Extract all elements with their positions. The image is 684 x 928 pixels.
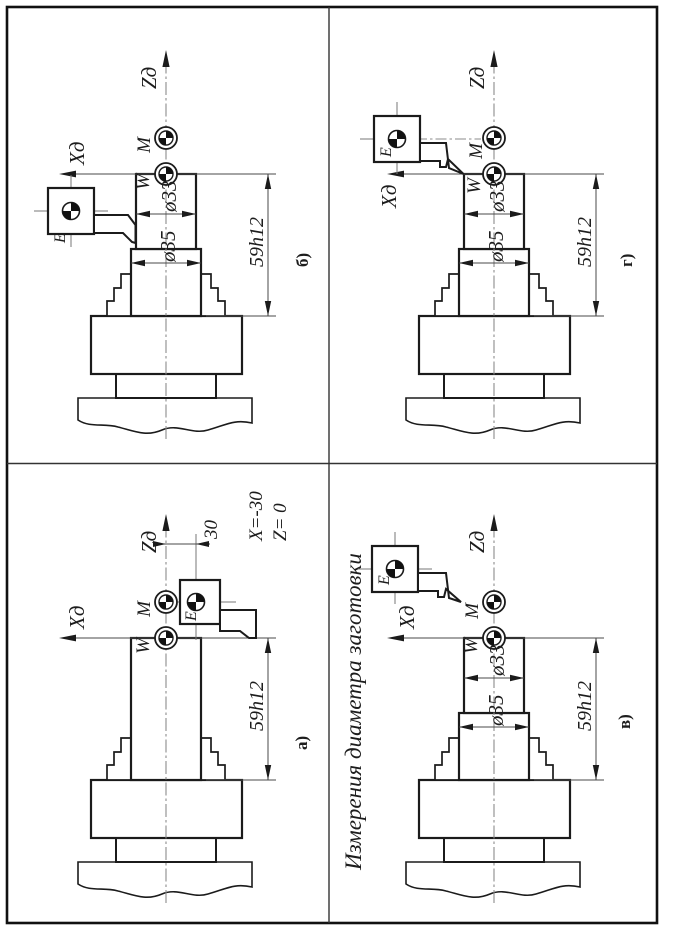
panel-label: в) [615,714,634,729]
axis-x-label: Хд [65,606,89,630]
lathe-setup-drawing: Измерения диаметра заготовки 30 X=-30 Z=… [0,0,684,928]
datum-m-icon [155,591,177,613]
axis-z-label: Zд [465,67,489,89]
dia-large-value: ø35 [484,695,508,728]
panel-a: 30 X=-30 Z= 0 Zд Хд M W E 59h12 а) [59,491,311,903]
dia-small-value: ø33 [485,645,509,678]
offset-value: 30 [201,520,222,541]
dia-small-value: ø33 [485,181,509,214]
axis-x-label: Хд [377,185,401,209]
coord-z-label: Z= 0 [270,503,291,541]
datum-m-icon [483,591,505,613]
point-w-label: W [133,636,154,654]
tool-blade [220,610,256,638]
axis-z-label: Zд [137,67,161,89]
point-m-label: M [134,600,155,618]
point-m-label: M [466,142,487,160]
panel-b: Zд Хд M W E ø33 ø35 59h12 б) [34,50,312,439]
point-m-label: M [134,136,155,154]
point-e-label: E [378,147,395,158]
point-m-label: M [462,602,483,620]
datum-e-icon [63,203,80,220]
panel-label: б) [293,253,312,267]
dia-large-value: ø35 [484,231,508,264]
datum-e-icon [387,561,404,578]
point-w-label: W [461,636,482,654]
axis-x-label: Хд [395,606,419,630]
length-value: 59h12 [574,217,596,267]
tool-blade [418,573,461,602]
length-value: 59h12 [246,681,268,731]
point-w-label: W [464,176,485,194]
panel-label: а) [292,736,311,750]
tool-blade [420,143,464,174]
length-value: 59h12 [246,217,268,267]
offset-arrow-bottom [196,541,209,547]
dia-small-value: ø33 [157,181,181,214]
point-e-label: E [376,575,393,586]
scanned-drawing-page: Измерения диаметра заготовки 30 X=-30 Z=… [0,0,684,928]
panel-label: г) [617,254,636,267]
panel-g: Zд Хд M W E ø33 ø35 59h12 г) [360,50,636,439]
point-e-label: E [183,611,200,622]
panel-v: Zд Хд M W E ø33 ø35 59h12 в) [358,514,634,903]
point-w-label: W [133,172,154,190]
axis-z-label: Zд [465,531,489,553]
axis-x-label: Хд [65,142,89,166]
drawing-title: Измерения диаметра заготовки [341,553,366,871]
datum-e-icon [389,131,406,148]
datum-e-icon [188,594,205,611]
axis-z-label: Zд [137,531,161,553]
datum-m-icon [155,127,177,149]
coord-x-label: X=-30 [246,491,267,542]
datum-w-icon [155,627,177,649]
dia-large-value: ø35 [156,231,180,264]
point-e-label: E [52,233,69,244]
tool-blade [94,215,136,243]
length-value: 59h12 [574,681,596,731]
